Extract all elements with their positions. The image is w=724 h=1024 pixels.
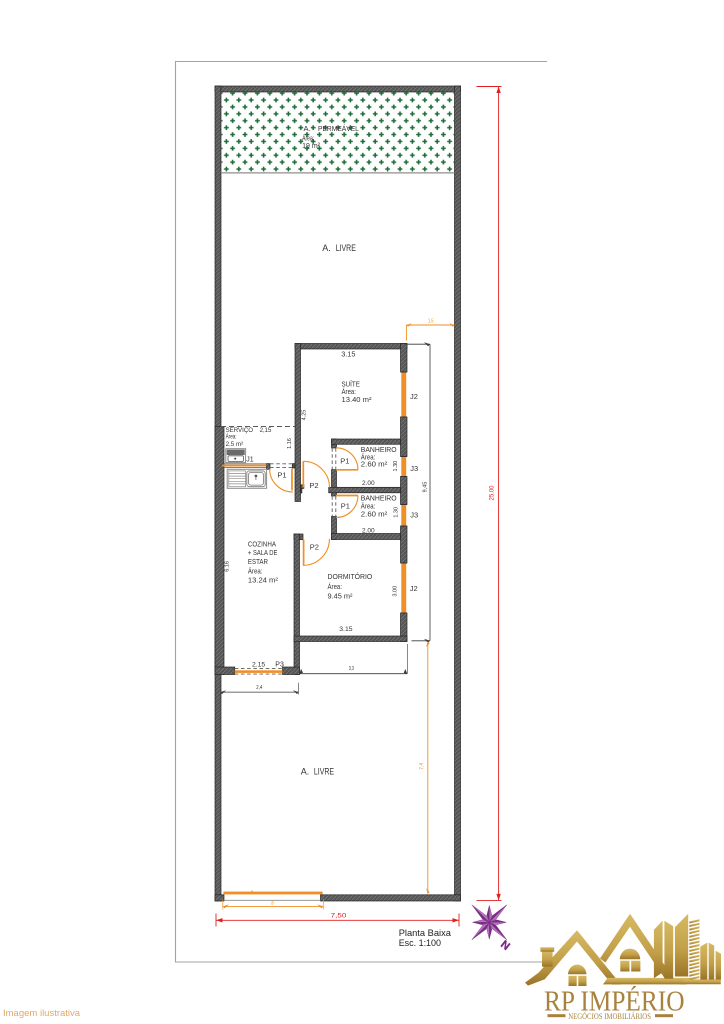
svg-text:7,50: 7,50 xyxy=(331,913,347,920)
svg-text:Área:: Área: xyxy=(248,567,263,576)
svg-text:7,4: 7,4 xyxy=(419,763,425,770)
svg-text:6.16: 6.16 xyxy=(225,561,231,572)
svg-text:A.: A. xyxy=(322,243,331,253)
svg-text:2,4: 2,4 xyxy=(256,685,262,691)
svg-text:P1: P1 xyxy=(340,457,349,466)
svg-text:P1: P1 xyxy=(341,502,350,511)
svg-text:2.60 m²: 2.60 m² xyxy=(361,509,388,518)
svg-text:PERMEÁVEL: PERMEÁVEL xyxy=(318,124,359,133)
svg-text:1.30: 1.30 xyxy=(393,461,399,472)
svg-text:P1: P1 xyxy=(277,470,286,479)
svg-text:3.15: 3.15 xyxy=(341,349,355,358)
svg-text:3.15: 3.15 xyxy=(339,626,352,633)
svg-text:COZINHA: COZINHA xyxy=(248,540,276,549)
svg-text:2.00: 2.00 xyxy=(362,528,375,535)
svg-text:Área:: Área: xyxy=(328,582,343,591)
svg-text:Esc. 1:100: Esc. 1:100 xyxy=(399,938,441,949)
svg-text:3,3: 3,3 xyxy=(349,666,354,672)
svg-text:LIVRE: LIVRE xyxy=(336,243,356,253)
svg-text:LIVRE: LIVRE xyxy=(314,766,334,776)
svg-text:2,15: 2,15 xyxy=(260,427,272,434)
svg-text:P2: P2 xyxy=(310,543,319,552)
svg-text:25.00: 25.00 xyxy=(490,485,496,501)
svg-text:1.30: 1.30 xyxy=(393,507,399,518)
svg-text:2.60 m²: 2.60 m² xyxy=(361,460,388,469)
svg-text:ESTAR: ESTAR xyxy=(248,557,268,566)
svg-text:J3: J3 xyxy=(410,510,418,519)
svg-text:P2: P2 xyxy=(309,481,318,490)
svg-text:1.16: 1.16 xyxy=(287,438,293,449)
svg-text:J1: J1 xyxy=(246,456,254,463)
svg-text:2.00: 2.00 xyxy=(362,480,375,487)
svg-text:NEGÓCIOS IMOBILIÁRIOS: NEGÓCIOS IMOBILIÁRIOS xyxy=(568,1011,651,1021)
svg-text:A.: A. xyxy=(304,124,311,133)
svg-text:4.25: 4.25 xyxy=(301,410,307,421)
svg-text:2.5 m²: 2.5 m² xyxy=(226,441,244,448)
svg-text:Imagem ilustrativa: Imagem ilustrativa xyxy=(3,1008,81,1019)
svg-text:J2: J2 xyxy=(410,392,418,401)
svg-text:DORMITÓRIO: DORMITÓRIO xyxy=(328,572,373,581)
svg-text:P3: P3 xyxy=(275,662,284,669)
svg-text:3.00: 3.00 xyxy=(393,586,399,597)
svg-text:2.15: 2.15 xyxy=(252,662,265,669)
svg-text:13.24 m²: 13.24 m² xyxy=(248,575,278,584)
svg-text:A.: A. xyxy=(301,766,310,776)
svg-text:9.45 m²: 9.45 m² xyxy=(328,591,353,600)
svg-text:J2: J2 xyxy=(410,584,418,593)
svg-text:13.40 m²: 13.40 m² xyxy=(342,395,372,404)
svg-text:19 m²: 19 m² xyxy=(302,141,320,150)
svg-text:J3: J3 xyxy=(410,464,418,473)
svg-text:9,45: 9,45 xyxy=(422,482,428,493)
svg-text:1,5: 1,5 xyxy=(428,319,434,325)
svg-text:3: 3 xyxy=(271,901,274,907)
svg-text:Área:: Área: xyxy=(226,432,237,441)
